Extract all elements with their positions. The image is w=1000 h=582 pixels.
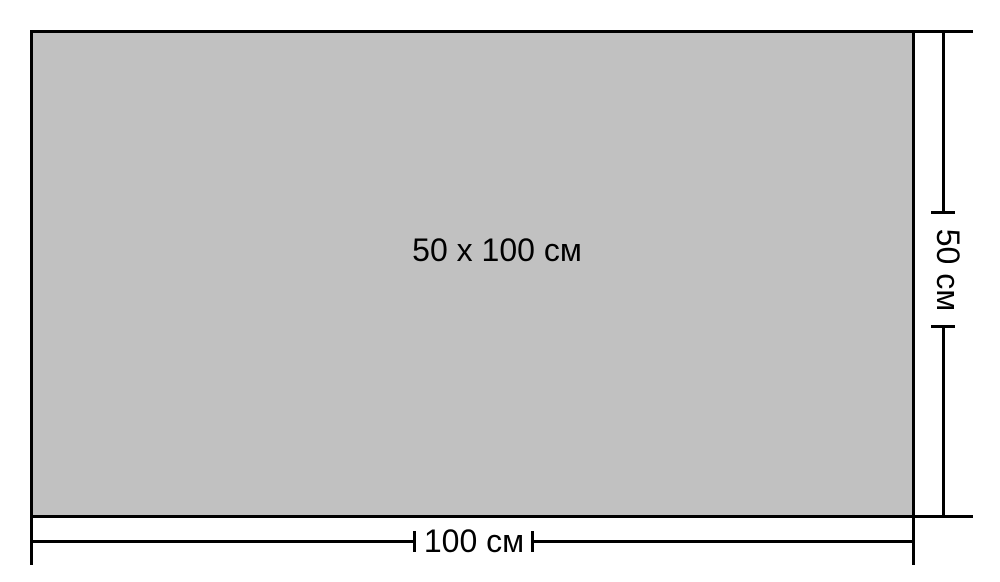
height-dimension-line-lower [942, 328, 945, 518]
height-tick-upper [931, 211, 955, 214]
height-dimension-line-upper [942, 30, 945, 213]
panel-size-label: 50 x 100 см [412, 234, 582, 266]
panel-rectangle [30, 30, 915, 518]
height-dimension-label: 50 см [932, 229, 964, 311]
width-tick-left [413, 531, 416, 552]
width-dimension-line-left [30, 540, 415, 543]
diagram-canvas: 50 x 100 см 50 см 100 см [0, 0, 1000, 582]
width-dimension-label: 100 см [424, 525, 524, 557]
width-dimension-line-right [533, 540, 915, 543]
